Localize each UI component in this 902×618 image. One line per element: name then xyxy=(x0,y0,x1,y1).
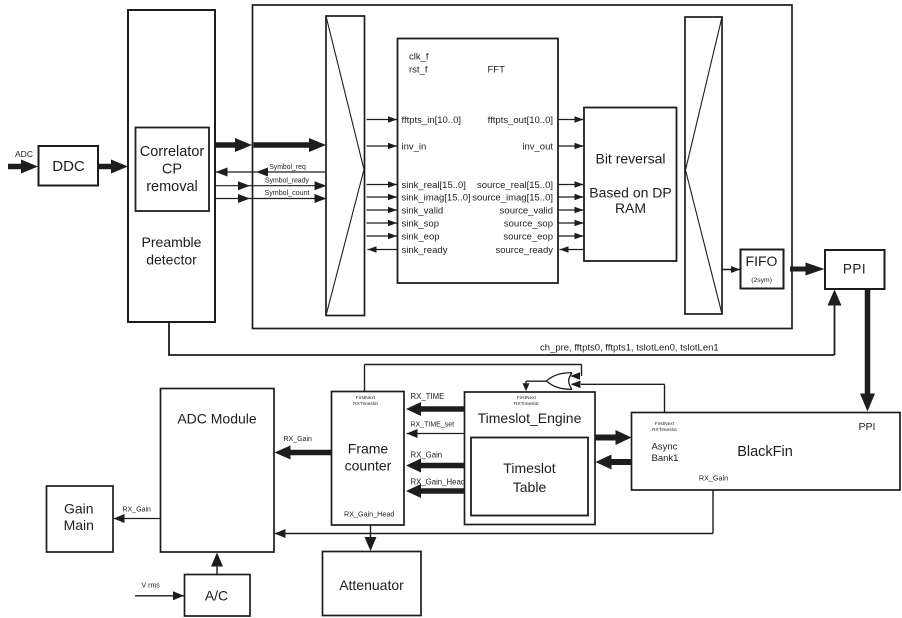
svg-text:RAM: RAM xyxy=(615,200,646,216)
svg-text:counter: counter xyxy=(345,458,392,474)
svg-text:sink_imag[15..0]: sink_imag[15..0] xyxy=(402,192,471,203)
svg-text:PPI: PPI xyxy=(843,262,866,277)
svg-text:Main: Main xyxy=(64,517,94,533)
svg-text:Bank1: Bank1 xyxy=(652,453,679,464)
svg-text:RXTimeslot: RXTimeslot xyxy=(514,401,539,407)
svg-text:FIFO: FIFO xyxy=(746,253,778,269)
svg-text:RX_TIME_set: RX_TIME_set xyxy=(411,422,455,429)
svg-text:BlackFin: BlackFin xyxy=(737,444,793,460)
svg-text:RX_Gain: RX_Gain xyxy=(284,436,313,443)
svg-text:Correlator: Correlator xyxy=(140,144,205,160)
svg-text:Attenuator: Attenuator xyxy=(339,577,404,593)
svg-text:Symbol_req: Symbol_req xyxy=(269,164,306,171)
svg-text:source_sop: source_sop xyxy=(504,218,553,229)
svg-text:fftpts_in[10..0]: fftpts_in[10..0] xyxy=(402,115,462,126)
svg-text:FirstNext: FirstNext xyxy=(655,421,675,427)
svg-text:RX_Gain: RX_Gain xyxy=(123,507,152,514)
svg-text:detector: detector xyxy=(146,252,197,268)
svg-text:RX_TIME: RX_TIME xyxy=(411,392,445,401)
svg-text:sink_eop: sink_eop xyxy=(402,231,440,242)
svg-text:source_valid: source_valid xyxy=(500,205,553,216)
svg-text:RX_Gain: RX_Gain xyxy=(699,474,728,483)
svg-text:Timeslot: Timeslot xyxy=(503,460,555,476)
svg-text:source_real[15..0]: source_real[15..0] xyxy=(477,180,553,191)
svg-text:A/C: A/C xyxy=(205,588,228,604)
svg-text:source_imag[15..0]: source_imag[15..0] xyxy=(472,192,553,203)
svg-text:DDC: DDC xyxy=(52,158,85,175)
svg-text:inv_in: inv_in xyxy=(402,141,427,152)
svg-text:FirstNext: FirstNext xyxy=(517,395,537,401)
svg-text:Bit reversal: Bit reversal xyxy=(595,151,665,167)
svg-text:inv_out: inv_out xyxy=(522,141,553,152)
svg-text:FFT: FFT xyxy=(488,65,506,76)
svg-text:sink_ready: sink_ready xyxy=(402,245,448,256)
svg-text:Async: Async xyxy=(652,442,678,453)
svg-text:clk_f: clk_f xyxy=(409,52,429,63)
svg-text:ADC Module: ADC Module xyxy=(177,411,257,427)
svg-text:Preamble: Preamble xyxy=(142,234,202,250)
svg-text:RX_Gain_Head: RX_Gain_Head xyxy=(344,510,394,519)
svg-text:Based on DP: Based on DP xyxy=(589,185,672,201)
svg-text:source_ready: source_ready xyxy=(495,245,553,256)
svg-text:Symbol_ready: Symbol_ready xyxy=(265,178,309,185)
svg-text:RXTimeslot: RXTimeslot xyxy=(353,401,378,407)
svg-text:ch_pre, fftpts0, fftpts1, tslo: ch_pre, fftpts0, fftpts1, tslotLen0, tsl… xyxy=(540,343,719,354)
svg-text:(2sym): (2sym) xyxy=(751,277,772,284)
svg-text:PPI: PPI xyxy=(859,421,876,433)
svg-text:Timeslot_Engine: Timeslot_Engine xyxy=(478,410,582,426)
svg-text:rst_f: rst_f xyxy=(409,65,428,76)
svg-text:fftpts_out[10..0]: fftpts_out[10..0] xyxy=(488,115,553,126)
svg-text:Table: Table xyxy=(513,479,547,495)
svg-text:source_eop: source_eop xyxy=(503,231,553,242)
svg-text:Symbol_count: Symbol_count xyxy=(265,190,310,197)
svg-text:RX_Gain: RX_Gain xyxy=(411,451,443,460)
svg-text:sink_sop: sink_sop xyxy=(402,218,440,229)
svg-text:sink_real[15..0]: sink_real[15..0] xyxy=(402,180,466,191)
svg-text:V rms: V rms xyxy=(142,583,161,590)
svg-text:RXTimeslot: RXTimeslot xyxy=(652,427,677,433)
svg-text:FirstNext: FirstNext xyxy=(356,395,376,401)
svg-text:CP: CP xyxy=(162,162,182,178)
svg-text:removal: removal xyxy=(146,179,198,195)
svg-text:ADC: ADC xyxy=(15,149,33,159)
svg-text:Frame: Frame xyxy=(348,441,389,457)
svg-text:sink_valid: sink_valid xyxy=(402,205,444,216)
svg-text:Gain: Gain xyxy=(64,501,94,517)
